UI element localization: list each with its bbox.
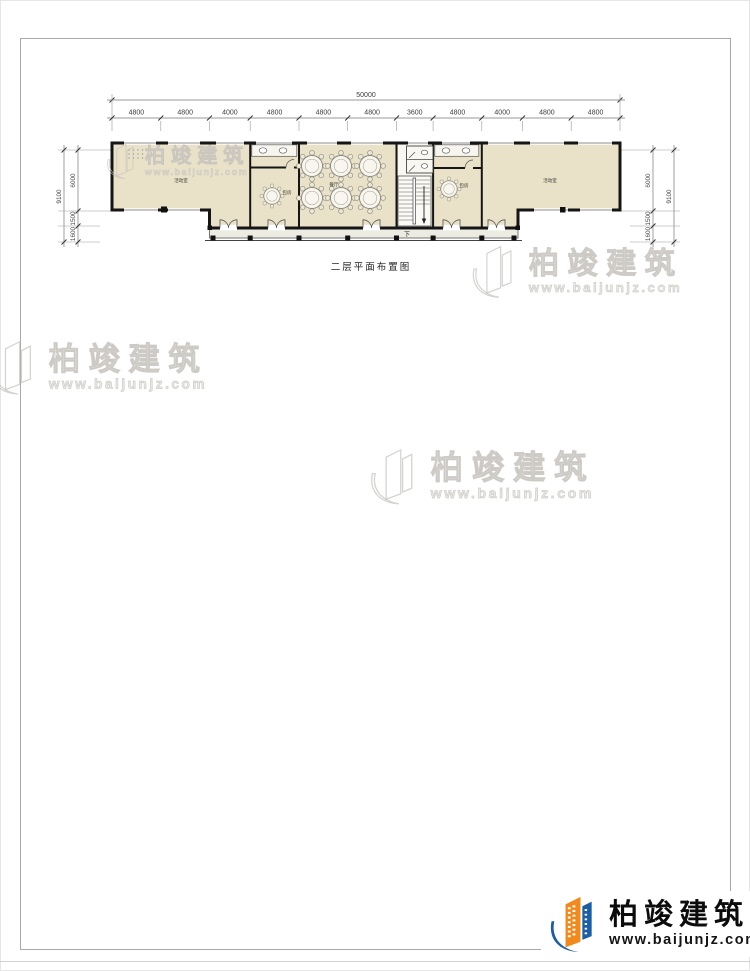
dim-right-total: 9100 — [666, 189, 673, 204]
left-dimension-chain: 6000 1500 1600 9100 — [56, 145, 112, 247]
dim-bay: 4800 — [450, 110, 466, 117]
dim-bay: 4800 — [588, 110, 604, 117]
dim-right-seg: 1600 — [645, 226, 652, 241]
dim-bay: 4000 — [494, 110, 510, 117]
room-label-dining: 餐厅 — [329, 181, 339, 188]
stair-direction-label: 下 — [404, 232, 410, 239]
washbasin-counter-right — [435, 145, 479, 157]
dim-total-width: 50000 — [356, 92, 376, 99]
brand-url-text: www.baijunjz.com — [609, 932, 750, 948]
dim-right-seg: 1500 — [645, 211, 652, 226]
drawing-title: 二层平面布置图 — [331, 261, 412, 273]
room-label-left-private: 包房 — [282, 189, 292, 196]
room-label-right-private: 包房 — [459, 182, 469, 189]
page-bottom-rule — [0, 961, 750, 962]
dim-left-seg: 1600 — [70, 226, 77, 241]
drawing-page: { "drawing": { "title": "二层平面布置图" }, "di… — [0, 0, 750, 971]
dim-bay: 4800 — [539, 110, 555, 117]
room-label-left-hall: 活动室 — [174, 177, 188, 184]
wc-stalls — [407, 146, 434, 173]
dim-left-seg: 6000 — [70, 173, 77, 188]
dim-bay: 4800 — [364, 110, 380, 117]
top-dimension-chain: 50000 4800 48 — [107, 92, 625, 131]
exterior-walls — [112, 143, 620, 228]
dim-bay: 4800 — [129, 110, 145, 117]
washbasin-counter-left — [252, 145, 297, 157]
dim-bay: 4800 — [177, 110, 193, 117]
dim-bay: 4800 — [316, 110, 332, 117]
dim-bay: 4000 — [222, 110, 238, 117]
brand-name-text: 柏竣建筑 — [609, 900, 750, 930]
dim-bay: 4800 — [267, 110, 283, 117]
dim-bay: 3600 — [407, 110, 423, 117]
building-icon — [545, 893, 601, 955]
room-label-right-hall: 活动室 — [543, 177, 557, 184]
right-dimension-chain: 6000 1500 1600 9100 — [620, 145, 680, 247]
floor-plan-drawing: 50000 4800 48 — [0, 0, 750, 971]
brand-logo: 柏竣建筑 www.baijunjz.com — [541, 891, 750, 957]
dim-left-seg: 1500 — [70, 211, 77, 226]
dim-left-total: 9100 — [56, 189, 63, 204]
dim-right-seg: 6000 — [645, 173, 652, 188]
